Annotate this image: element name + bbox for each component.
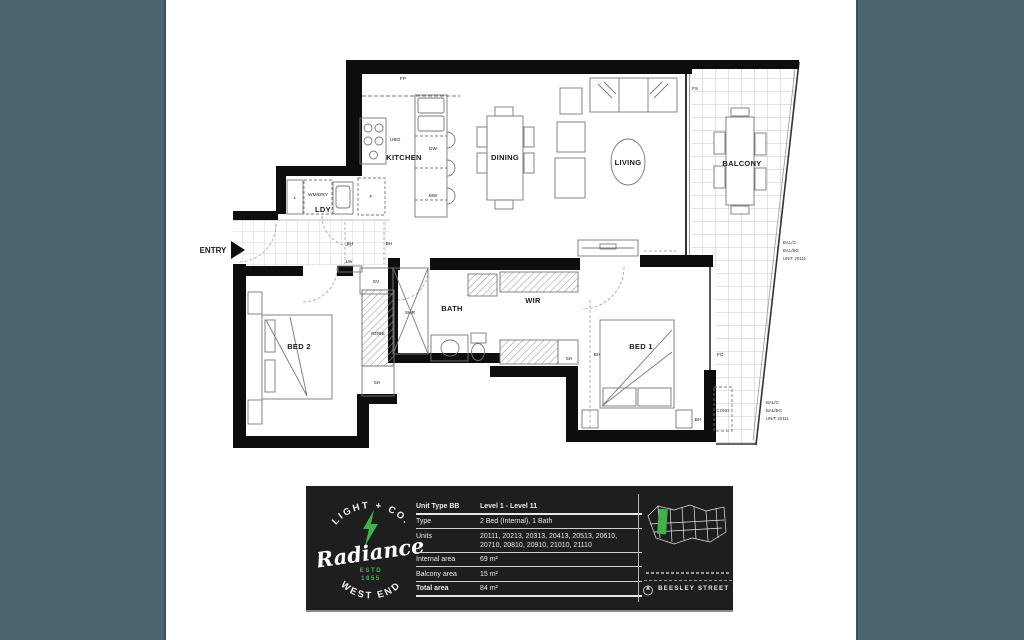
units-line-1: 20111, 20213, 20313, 20413, 20513, 20610… bbox=[480, 532, 642, 541]
radiance-logo: LIGHT + CO. Radiance ESTD 1855 WEST END bbox=[318, 494, 424, 612]
units-label: Units bbox=[416, 532, 480, 550]
stool bbox=[447, 188, 455, 204]
type-label: Type bbox=[416, 517, 480, 526]
fixture-label-lw: LW bbox=[346, 259, 353, 265]
table-row-internal-area: Internal area 69 m² bbox=[416, 553, 642, 568]
room-label-dining: DINING bbox=[491, 153, 519, 162]
sink-bowl-1 bbox=[418, 98, 444, 113]
type-value: 2 Bed (Internal), 1 Bath bbox=[480, 517, 642, 526]
north-compass-icon bbox=[642, 584, 654, 596]
bedside-table bbox=[676, 410, 692, 428]
fixture-label-wmdry: WM/DRY bbox=[308, 192, 329, 198]
balcony-area-value: 15 m² bbox=[480, 570, 642, 579]
bed2-bed bbox=[262, 315, 332, 399]
balcony-area-label: Balcony area bbox=[416, 570, 480, 579]
total-area-label: Total area bbox=[416, 584, 480, 593]
fixture-label-bh: BH bbox=[347, 241, 354, 247]
fixture-label-sv: SV bbox=[373, 279, 380, 285]
wir-robe-top bbox=[500, 272, 578, 292]
living-furniture bbox=[555, 78, 677, 256]
stool bbox=[447, 132, 455, 148]
units-line-2: 20710, 20810, 20910, 21010, 21110 bbox=[480, 541, 642, 550]
fixture-label-sh: SH bbox=[566, 356, 573, 362]
logo-year: 1855 bbox=[361, 575, 381, 582]
logo-arc-bottom: WEST END bbox=[338, 579, 403, 601]
fixture-label-bh: BH bbox=[386, 241, 393, 247]
internal-area-value: 69 m² bbox=[480, 555, 642, 564]
fixture-label-dw: DW bbox=[429, 146, 437, 152]
room-label-bath: BATH bbox=[441, 304, 462, 313]
table-header-row: Unit Type BB Level 1 - Level 11 bbox=[416, 499, 642, 515]
total-area-value: 84 m² bbox=[480, 584, 642, 593]
fixture-label-ubo: UBO bbox=[390, 137, 401, 143]
bed1-furniture bbox=[582, 320, 692, 428]
room-label-bed2: BED 2 bbox=[287, 342, 311, 351]
fixture-label-l: L bbox=[294, 195, 297, 201]
street-name: BEESLEY STREET bbox=[658, 585, 729, 592]
info-panel: LIGHT + CO. Radiance ESTD 1855 WEST END … bbox=[306, 486, 733, 612]
screenshot-stage: ENTRY KITCHEN DINING LIVING BALCONY LDY … bbox=[0, 0, 1024, 640]
key-plan-caption-microtext bbox=[646, 572, 730, 574]
balcony-note-lower-3: UNIT 20111 bbox=[766, 416, 789, 421]
room-label-ldy: LDY bbox=[315, 205, 331, 214]
room-label-living: LIVING bbox=[615, 158, 642, 167]
balcony-note-upper-2: BAL/BG bbox=[783, 248, 799, 253]
fixture-label-bh: BH bbox=[695, 417, 702, 423]
bath-shelf bbox=[468, 274, 497, 296]
highlighted-unit bbox=[657, 509, 668, 535]
living-glass bbox=[685, 70, 687, 258]
bath-door-arc bbox=[398, 270, 428, 300]
room-label-kitchen: KITCHEN bbox=[386, 153, 421, 162]
fixture-label-fp: FP bbox=[400, 76, 406, 82]
table-row-units: Units 20111, 20213, 20313, 20413, 20513,… bbox=[416, 529, 642, 553]
fixture-label-mw: MW bbox=[429, 193, 438, 199]
fixture-label-fg: FG bbox=[717, 352, 724, 358]
internal-area-label: Internal area bbox=[416, 555, 480, 564]
bedside-table bbox=[248, 400, 262, 424]
wir-robe-bottom bbox=[500, 340, 558, 364]
unit-type-label: Unit Type BB bbox=[416, 502, 480, 511]
bedside-table bbox=[248, 292, 262, 314]
bed2-furniture bbox=[248, 292, 332, 424]
balcony-note-upper-1: BAL/G bbox=[783, 240, 797, 245]
stool bbox=[447, 160, 455, 176]
fixture-label-bh: BH bbox=[594, 352, 601, 358]
fixture-label-cond: COND bbox=[717, 408, 730, 413]
panel-divider bbox=[638, 494, 639, 602]
table-row-type: Type 2 Bed (Internal), 1 Bath bbox=[416, 515, 642, 530]
bed1-fixed-glass bbox=[709, 267, 711, 370]
toilet-cistern bbox=[471, 333, 486, 343]
street-dashed-line bbox=[644, 580, 732, 581]
key-plan bbox=[644, 494, 730, 568]
table-row-total-area: Total area 84 m² bbox=[416, 582, 642, 598]
table-row-balcony-area: Balcony area 15 m² bbox=[416, 567, 642, 582]
balcony-note-upper-3: UNIT 20111 bbox=[783, 256, 806, 261]
levels-label: Level 1 - Level 11 bbox=[480, 502, 642, 511]
svg-text:WEST END: WEST END bbox=[338, 579, 403, 601]
unit-details-table: Unit Type BB Level 1 - Level 11 Type 2 B… bbox=[416, 499, 642, 597]
room-label-bed1: BED 1 bbox=[629, 342, 653, 351]
bed1-bed bbox=[600, 320, 674, 408]
fixture-label-sh: SH bbox=[374, 380, 381, 386]
fixture-label-f: F bbox=[370, 194, 373, 200]
balcony-note-lower-1: BAL/G bbox=[766, 400, 780, 405]
bed2-door-arc bbox=[303, 268, 337, 302]
entry-label: ENTRY bbox=[200, 246, 227, 255]
sink-bowl-2 bbox=[418, 116, 444, 131]
logo-estd: ESTD bbox=[360, 567, 383, 574]
fixture-label-shr: SHR bbox=[405, 310, 416, 316]
room-label-balcony: BALCONY bbox=[722, 159, 761, 168]
balcony-note-lower-2: BAL/BG bbox=[766, 408, 782, 413]
fixture-label-fs: FS bbox=[692, 86, 698, 92]
sofa bbox=[590, 78, 677, 112]
fixture-label-robe: ROBE bbox=[371, 331, 385, 337]
bed1-door-arc bbox=[582, 267, 624, 309]
room-label-wir: WIR bbox=[525, 296, 541, 305]
